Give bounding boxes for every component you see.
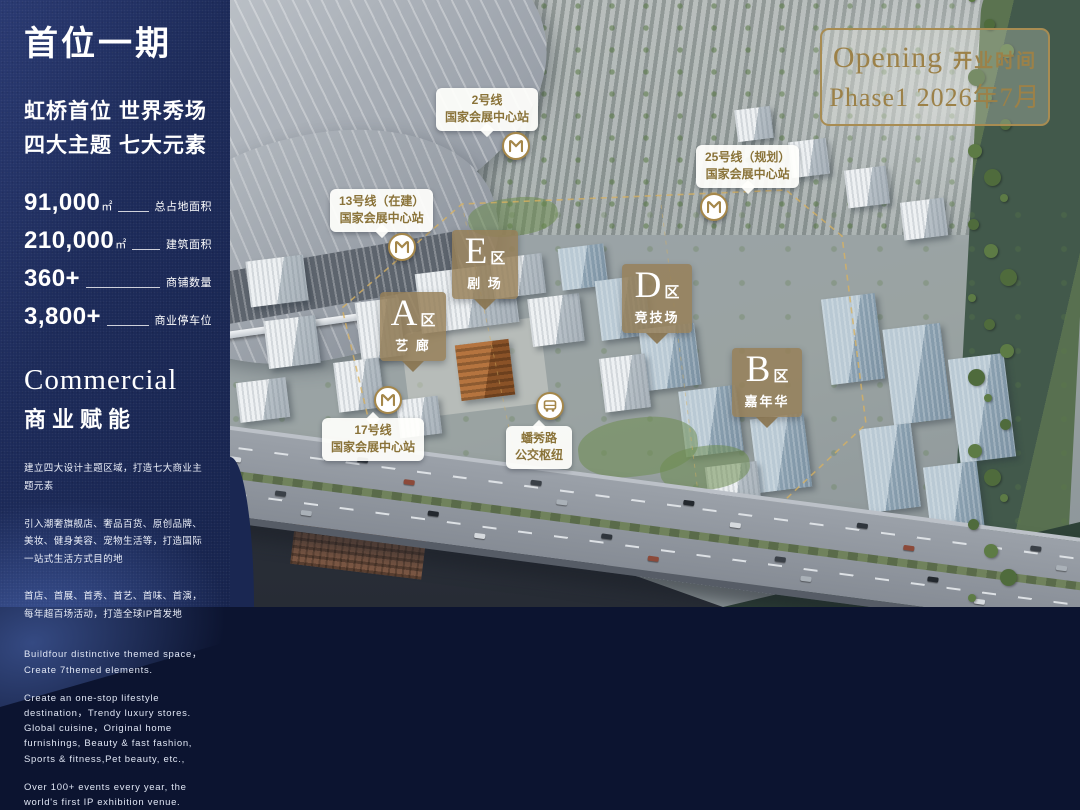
tree xyxy=(984,544,998,558)
station-line-name: 17号线 xyxy=(331,422,415,439)
metro-icon xyxy=(388,233,416,261)
sidebar-content: 首位一期 虹桥首位 世界秀场 四大主题 七大元素 91,000㎡ 总占地面积 2… xyxy=(0,0,230,810)
zone-letter: E xyxy=(465,233,488,270)
tree xyxy=(984,244,998,258)
info-sidebar: 首位一期 虹桥首位 世界秀场 四大主题 七大元素 91,000㎡ 总占地面积 2… xyxy=(0,0,230,607)
commercial-paragraph-zh-2: 引入潮奢旗舰店、奢品百货、原创品牌、美妆、健身美容、宠物生活等，打造国际一站式生… xyxy=(24,516,212,569)
badge-phase-date: Phase1 2026年7月 xyxy=(829,77,1040,114)
station-label: 13号线（在建） 国家会展中心站 xyxy=(330,189,433,232)
commercial-heading-en: Commercial xyxy=(24,365,212,397)
tree xyxy=(1000,569,1017,586)
station-name: 国家会展中心站 xyxy=(331,439,415,456)
commercial-paragraph-zh-1: 建立四大设计主题区域，打造七大商业主题元素 xyxy=(24,460,212,495)
tree xyxy=(1000,194,1008,202)
stat-row-parking: 3,800+ 商业停车位 xyxy=(24,303,212,331)
badge-opening-zh: 开业时间 xyxy=(953,46,1037,73)
subtitle-line-1: 虹桥首位 世界秀场 xyxy=(24,95,212,129)
zone-letter: A xyxy=(391,295,418,332)
tree xyxy=(1000,419,1011,430)
station-label: 25号线（规划） 国家会展中心站 xyxy=(696,145,799,188)
station-label: 2号线 国家会展中心站 xyxy=(436,88,538,131)
station-line-name: 25号线（规划） xyxy=(705,149,790,166)
zone-pointer xyxy=(402,361,424,372)
commercial-paragraph-en-3: Over 100+ events every year, the world's… xyxy=(24,780,212,810)
station-label: 17号线 国家会展中心站 xyxy=(322,418,424,461)
station-metro-line-17: 17号线 国家会展中心站 xyxy=(322,418,424,461)
aerial-map: 2号线 国家会展中心站 13号线（在建） 国家会展中心站 25号线（规划） 国家… xyxy=(230,0,1080,607)
stat-label: 建筑面积 xyxy=(166,236,212,252)
stat-value: 210,000 xyxy=(24,227,114,255)
zone-letter: D xyxy=(635,267,662,304)
stat-unit: ㎡ xyxy=(115,236,126,252)
opening-time-badge: Opening 开业时间 Phase1 2026年7月 xyxy=(820,28,1050,126)
building-block xyxy=(844,166,890,209)
bus-hub-panxiu-road: 蟠秀路 公交枢纽 xyxy=(506,426,572,469)
page-subtitle: 虹桥首位 世界秀场 四大主题 七大元素 xyxy=(24,95,212,162)
zone-head: B 区 xyxy=(739,351,795,388)
zone-head: D 区 xyxy=(629,267,685,304)
stat-label: 商业停车位 xyxy=(155,312,213,328)
stats-list: 91,000㎡ 总占地面积 210,000㎡ 建筑面积 360+ 商铺数量 3,… xyxy=(24,189,212,331)
building-block xyxy=(734,106,774,142)
tree xyxy=(984,469,1001,486)
commercial-paragraph-en-1: Buildfour distinctive themed space，Creat… xyxy=(24,647,212,677)
page-title: 首位一期 xyxy=(24,26,212,63)
building-block xyxy=(821,293,885,385)
stat-row-shop-count: 360+ 商铺数量 xyxy=(24,265,212,293)
tree xyxy=(968,294,976,302)
station-name: 公交枢纽 xyxy=(515,447,563,464)
zone-pointer xyxy=(474,299,496,310)
building-block xyxy=(263,315,320,369)
badge-row-1: Opening 开业时间 xyxy=(833,41,1037,75)
zone-label-e: E 区 剧 场 xyxy=(452,230,518,299)
zone-suffix: 区 xyxy=(773,369,788,384)
badge-opening-en: Opening xyxy=(833,41,943,75)
zone-name: 艺 廊 xyxy=(387,335,439,354)
building-block xyxy=(859,423,921,513)
stat-row-floor-area: 210,000㎡ 建筑面积 xyxy=(24,227,212,255)
tree xyxy=(968,519,979,530)
tree xyxy=(984,319,995,330)
zone-head: E 区 xyxy=(459,233,511,270)
stat-divider-line xyxy=(107,323,148,326)
metro-icon xyxy=(700,193,728,221)
tree xyxy=(968,594,976,602)
commercial-heading-zh: 商业赋能 xyxy=(24,402,212,434)
station-name: 国家会展中心站 xyxy=(705,166,790,183)
stat-divider-line xyxy=(132,247,160,250)
zone-label-a: A 区 艺 廊 xyxy=(380,292,446,361)
commercial-paragraph-en-2: Create an one-stop lifestyle destination… xyxy=(24,691,212,767)
stat-unit: ㎡ xyxy=(101,198,112,214)
building-block xyxy=(900,197,948,240)
stat-label: 总占地面积 xyxy=(155,198,213,214)
station-metro-line-2: 2号线 国家会展中心站 xyxy=(436,88,538,131)
subtitle-line-2: 四大主题 七大元素 xyxy=(24,129,212,163)
tree xyxy=(984,394,992,402)
station-line-name: 13号线（在建） xyxy=(339,193,424,210)
station-name: 国家会展中心站 xyxy=(339,210,424,227)
zone-name: 嘉年华 xyxy=(739,391,795,410)
zone-label-d: D 区 竞技场 xyxy=(622,264,692,333)
station-line-name: 2号线 xyxy=(445,92,529,109)
tree xyxy=(984,169,1001,186)
zone-suffix: 区 xyxy=(664,285,679,300)
zone-suffix: 区 xyxy=(490,251,505,266)
zone-head: A 区 xyxy=(387,295,439,332)
building-block xyxy=(527,293,584,347)
building-block xyxy=(599,353,651,412)
metro-icon xyxy=(374,386,402,414)
commercial-section: Commercial 商业赋能 建立四大设计主题区域，打造七大商业主题元素 引入… xyxy=(24,365,212,810)
building-block xyxy=(236,377,291,423)
commercial-paragraph-zh-3: 首店、首展、首秀、首艺、首味、首演，每年超百场活动，打造全球IP首发地 xyxy=(24,588,212,623)
stat-row-land-area: 91,000㎡ 总占地面积 xyxy=(24,189,212,217)
station-metro-line-25: 25号线（规划） 国家会展中心站 xyxy=(696,145,799,188)
zone-letter: B xyxy=(746,351,771,388)
zone-name: 剧 场 xyxy=(459,273,511,292)
stat-label: 商铺数量 xyxy=(166,274,212,290)
stat-value: 3,800+ xyxy=(24,303,101,331)
tree xyxy=(968,369,985,386)
zone-suffix: 区 xyxy=(420,313,435,328)
zone-pointer xyxy=(646,333,668,344)
tree xyxy=(968,144,982,158)
stat-value: 91,000 xyxy=(24,189,100,217)
building-block xyxy=(882,323,951,425)
tree xyxy=(1000,344,1014,358)
building-block xyxy=(455,339,515,401)
zone-pointer xyxy=(756,417,778,428)
tree xyxy=(968,444,982,458)
station-name: 国家会展中心站 xyxy=(445,109,529,126)
stat-value: 360+ xyxy=(24,265,80,293)
metro-icon xyxy=(502,132,530,160)
station-line-name: 蟠秀路 xyxy=(515,430,563,447)
station-metro-line-13: 13号线（在建） 国家会展中心站 xyxy=(330,189,433,232)
stat-divider-line xyxy=(118,209,148,212)
stat-divider-line xyxy=(86,285,160,288)
zone-label-b: B 区 嘉年华 xyxy=(732,348,802,417)
tree xyxy=(968,219,979,230)
tree xyxy=(1000,269,1017,286)
zone-name: 竞技场 xyxy=(629,307,685,326)
bus-icon xyxy=(536,392,564,420)
tree xyxy=(1000,494,1008,502)
building-block xyxy=(245,255,308,308)
station-label: 蟠秀路 公交枢纽 xyxy=(506,426,572,469)
